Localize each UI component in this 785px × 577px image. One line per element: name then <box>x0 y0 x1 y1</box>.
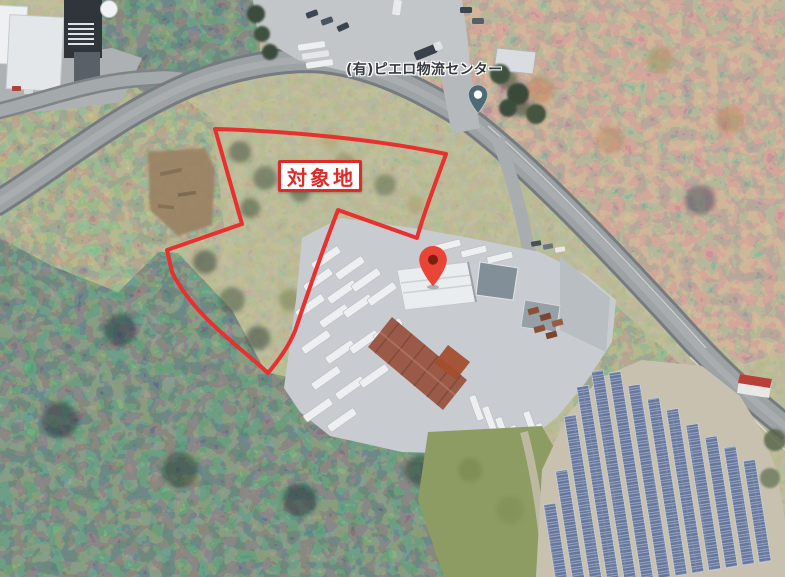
satellite-imagery <box>0 0 785 577</box>
place-label[interactable]: (有)ピエロ物流センター <box>346 61 502 79</box>
white-warehouse <box>397 262 476 310</box>
map-canvas[interactable]: (有)ピエロ物流センター 対象地 <box>0 0 785 577</box>
target-area-label-text: 対象地 <box>287 162 356 191</box>
target-area-label: 対象地 <box>278 160 362 192</box>
